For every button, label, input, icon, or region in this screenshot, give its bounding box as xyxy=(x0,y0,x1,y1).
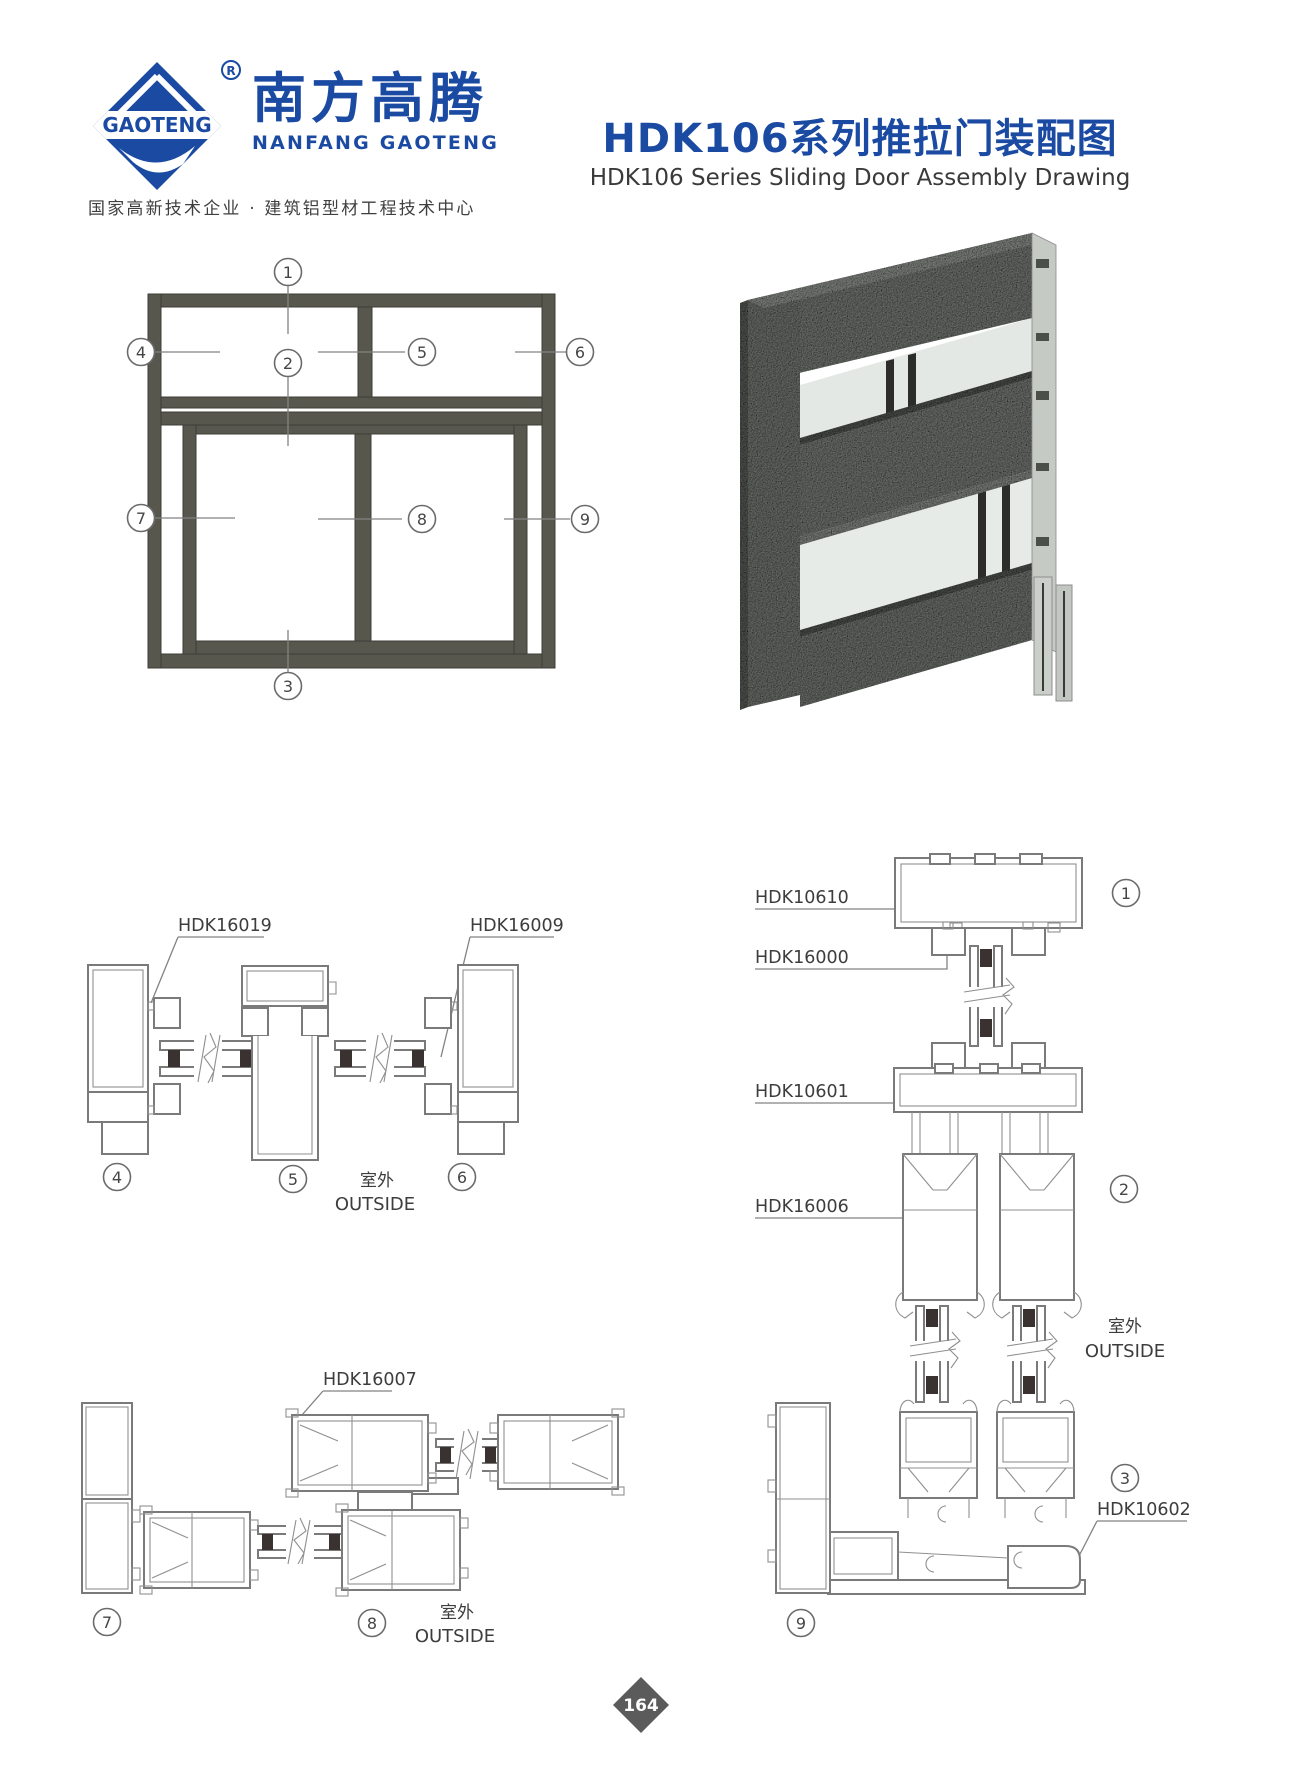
profile-center-interlock xyxy=(242,966,336,1160)
callout-4: 4 xyxy=(104,1164,131,1191)
profile-left-jamb xyxy=(82,1403,140,1593)
profile-track-left xyxy=(896,1154,985,1318)
svg-text:3: 3 xyxy=(1120,1469,1130,1488)
profile-sash-bottom-left xyxy=(900,1400,977,1522)
label-hdk16009: HDK16009 xyxy=(470,916,564,936)
profile-sash xyxy=(140,1506,258,1594)
corner-sample-render xyxy=(650,215,1120,715)
svg-text:7: 7 xyxy=(136,509,146,528)
callout-2: 2 xyxy=(1111,1176,1138,1203)
outside-label-en: OUTSIDE xyxy=(415,1626,495,1647)
profile-right-jamb xyxy=(768,1403,830,1593)
callout-8: 8 xyxy=(409,506,436,533)
render-cut-profiles xyxy=(1032,233,1072,701)
outside-label-en: OUTSIDE xyxy=(1085,1341,1165,1362)
page-title-en: HDK106 Series Sliding Door Assembly Draw… xyxy=(560,165,1160,191)
callout-7: 7 xyxy=(128,505,155,532)
label-hdk16006: HDK16006 xyxy=(755,1197,849,1217)
render-frame-body xyxy=(740,233,1048,710)
brand-name-cn: 南方高腾 xyxy=(252,72,499,126)
company-logo: GAOTENG R xyxy=(85,48,255,198)
outside-label-cn: 室外 xyxy=(440,1603,474,1623)
profile-track-right xyxy=(993,1154,1082,1318)
brand-tagline: 国家高新技术企业 · 建筑铝型材工程技术中心 xyxy=(88,194,476,219)
profile-head-frame xyxy=(895,854,1082,932)
brand-names: 南方高腾 NANFANG GAOTENG xyxy=(252,72,499,154)
profile-sash-bottom-right xyxy=(997,1400,1074,1522)
catalog-page: GAOTENG R 南方高腾 NANFANG GAOTENG 国家高新技术企业 … xyxy=(0,0,1300,1775)
callout-5: 5 xyxy=(280,1166,307,1193)
svg-text:8: 8 xyxy=(367,1614,377,1633)
profile-sash xyxy=(336,1504,468,1596)
brand-name-en: NANFANG GAOTENG xyxy=(252,132,499,154)
profile-sash xyxy=(490,1409,624,1495)
label-hdk10601: HDK10601 xyxy=(755,1082,849,1102)
section-drawing-sill-run: HDK16007 xyxy=(40,1360,850,1680)
page-title-block: HDK106系列推拉门装配图 HDK106 Series Sliding Doo… xyxy=(560,116,1160,191)
callout-9: 9 xyxy=(788,1610,815,1637)
svg-text:5: 5 xyxy=(288,1170,298,1189)
profile-transom xyxy=(894,1043,1082,1154)
label-hdk16007: HDK16007 xyxy=(323,1370,417,1390)
svg-text:6: 6 xyxy=(457,1168,467,1187)
glass-unit xyxy=(258,1516,342,1568)
callout-1: 1 xyxy=(275,259,302,286)
callout-9: 9 xyxy=(572,506,599,533)
svg-text:3: 3 xyxy=(283,677,293,696)
glass-unit xyxy=(436,1429,498,1479)
label-hdk16019: HDK16019 xyxy=(178,916,272,936)
outside-label-en: OUTSIDE xyxy=(335,1194,415,1215)
page-number: 164 xyxy=(623,1696,659,1716)
svg-text:4: 4 xyxy=(136,343,146,362)
callout-2: 2 xyxy=(275,350,302,377)
glass-unit-vertical xyxy=(960,946,1014,1046)
outside-label-cn: 室外 xyxy=(1108,1317,1142,1337)
callout-7: 7 xyxy=(94,1609,121,1636)
leader-hdk10602 xyxy=(1078,1521,1187,1558)
svg-text:4: 4 xyxy=(112,1168,122,1187)
callout-4: 4 xyxy=(128,339,155,366)
registered-mark: R xyxy=(226,64,235,78)
label-hdk10602: HDK10602 xyxy=(1097,1500,1191,1520)
label-hdk10610: HDK10610 xyxy=(755,888,849,908)
callout-3: 3 xyxy=(1112,1465,1139,1492)
callout-1: 1 xyxy=(1113,880,1140,907)
glass-unit xyxy=(335,1032,425,1086)
profile-right-jamb xyxy=(425,965,518,1154)
profile-left-jamb xyxy=(88,965,180,1154)
logo-mark: GAOTENG xyxy=(102,113,211,137)
door-frame xyxy=(148,294,555,668)
callout-8: 8 xyxy=(359,1610,386,1637)
svg-text:2: 2 xyxy=(1119,1180,1129,1199)
svg-text:1: 1 xyxy=(283,263,293,282)
label-hdk16000: HDK16000 xyxy=(755,948,849,968)
glass-unit-vertical xyxy=(906,1306,960,1402)
page-title-cn: HDK106系列推拉门装配图 xyxy=(560,116,1160,162)
profile-sill xyxy=(828,1532,1085,1594)
svg-text:9: 9 xyxy=(796,1614,806,1633)
svg-text:8: 8 xyxy=(417,510,427,529)
svg-text:1: 1 xyxy=(1121,884,1131,903)
profile-sash-hdk16007 xyxy=(286,1409,436,1497)
callout-6: 6 xyxy=(567,339,594,366)
svg-text:9: 9 xyxy=(580,510,590,529)
section-drawing-mullion: HDK16019 HDK16009 xyxy=(40,830,640,1230)
svg-text:2: 2 xyxy=(283,354,293,373)
callout-3: 3 xyxy=(275,673,302,700)
svg-text:7: 7 xyxy=(102,1613,112,1632)
glass-unit xyxy=(160,1032,255,1086)
callout-5: 5 xyxy=(409,339,436,366)
page-number-badge: 164 xyxy=(611,1675,671,1735)
elevation-drawing: 1 2 3 4 5 6 7 8 9 xyxy=(100,230,610,710)
callout-6: 6 xyxy=(449,1164,476,1191)
leader-hdk16007 xyxy=(302,1391,392,1415)
svg-text:6: 6 xyxy=(575,343,585,362)
svg-text:5: 5 xyxy=(417,343,427,362)
glass-unit-vertical xyxy=(1003,1306,1057,1402)
outside-label-cn: 室外 xyxy=(360,1171,394,1191)
